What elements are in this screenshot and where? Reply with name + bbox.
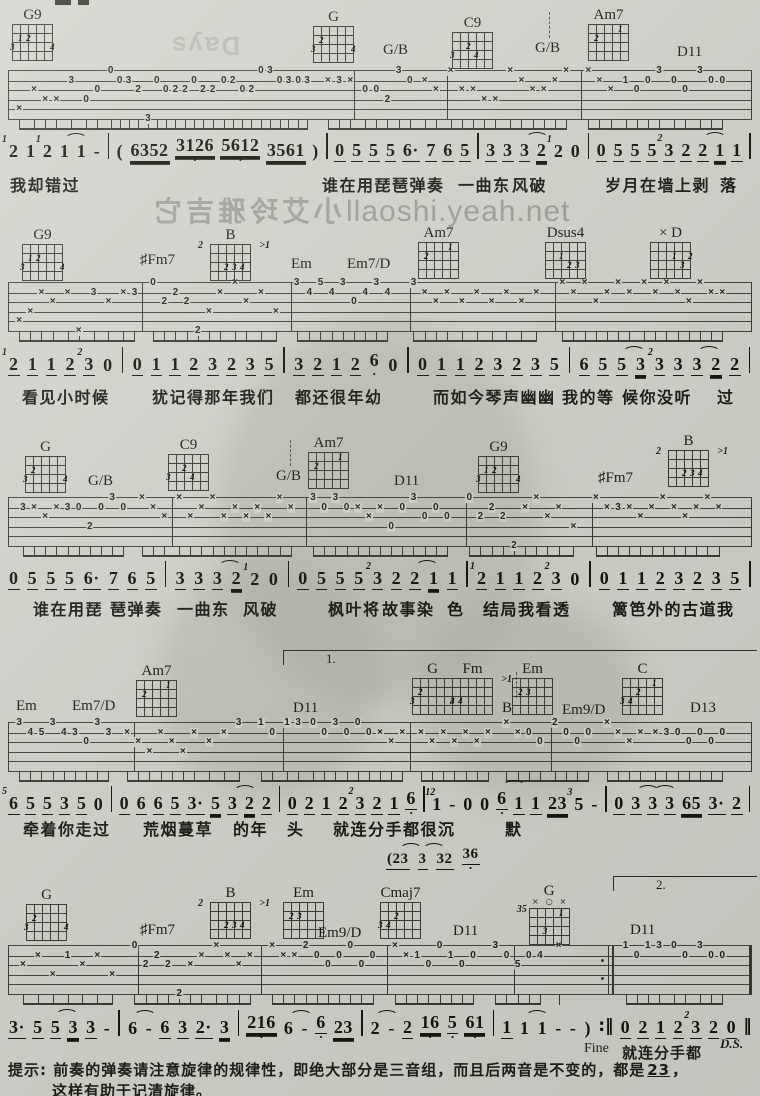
note-number: 2 [312,355,324,376]
chord-top-marks: ×○× [532,898,573,906]
jianpu-note: 2 [304,794,316,815]
jianpu-note: 2 [710,355,722,376]
jianpu-note: 23 [372,569,384,590]
chord-label-G/B: G/B [535,40,560,57]
note-beam [466,780,477,783]
lyric-text: 都还很年幼 [295,384,383,408]
jianpu-note: 3 [177,1018,189,1039]
note-number: 3 [293,355,305,376]
chord-diagram-G9: G91234 [12,8,53,61]
jianpu-note: 7 [108,569,120,590]
tab-note: × [625,503,633,513]
note-beam [257,555,268,558]
volta-bracket: 2. [613,876,757,891]
tab-note: 0 [369,951,377,961]
measure-barline [466,498,467,546]
note-number: 32 [436,852,454,870]
note-beam [655,780,666,783]
note-number: 5 [27,569,39,590]
jianpu-note: 23 [663,141,675,162]
note-beam [19,780,30,783]
finger-number: 2 [518,688,523,697]
note-beam [562,340,573,343]
tab-note: 1 [622,76,630,86]
note-number: 3 [673,355,685,376]
note-beam [235,340,246,343]
tab-note: 0 [82,95,90,105]
note-beam [413,340,424,343]
tip-note-numbers: 23 [645,1061,672,1079]
finger-number: 3 [232,921,237,930]
note-beam [53,340,68,343]
finger-number: 4 [60,263,65,272]
note-number: 0 [569,570,581,590]
note-beam [34,555,45,558]
jianpu-note: 3 [530,355,542,376]
chord-grid: 2342>1 [210,244,251,281]
chord-name: Am7 [136,664,177,678]
note-beam [391,780,402,783]
jianpu-note: 5 [27,569,39,590]
tab-note: 1 [413,951,421,961]
jianpu-note: 3 [647,794,659,815]
fret-label-right: >1 [717,446,728,457]
jianpu-note: 2 [680,141,692,162]
finger-number: 3 [450,697,455,706]
tab-note: 3 [125,76,133,86]
note-stem [250,994,251,1005]
chord-label-G/B: G/B [276,468,301,485]
fret-label-left: 2 [198,240,203,251]
note-beam [190,555,201,558]
note-beam [559,555,574,558]
tab-note: 2 [86,522,94,532]
tab-note: 2 [209,85,217,95]
finger-number: 4 [516,475,521,484]
tab-note: 0 [354,718,362,728]
tab-note: × [718,288,726,298]
tab-note: × [603,718,611,728]
tab-staff: 3×××302030××××××××××××××3030×××003000022… [8,497,752,547]
tab-note: × [220,512,228,522]
note-beam [187,340,198,343]
chord-name: G9 [478,440,519,454]
finger-number: 3 [378,921,383,930]
note-beam [68,555,79,558]
tab-note: 1 [283,718,291,728]
tab-note: × [231,503,239,513]
note-beam [640,555,651,558]
note-beam [53,1003,68,1006]
scan-artifact [55,0,71,5]
note-beam [674,1003,685,1006]
note-number: 3561 [266,141,306,162]
tab-note: × [291,951,299,961]
jianpu-note: 3 [207,355,219,376]
staff-edge [8,498,9,546]
note-stem [722,994,723,1005]
note-number: 2 [391,569,403,590]
note-beam [480,555,491,558]
measure-barline [447,71,448,119]
note-beam [79,340,94,343]
finger-number: 3 [20,263,25,272]
jianpu-note: 1 [169,355,181,376]
lyric-text: 故事染 [382,596,435,620]
measure-bar [279,786,281,812]
tab-staff: ××××××3××302222××××××3454304343×××××××××… [8,282,752,332]
chord-diagram-Am7: Am712 [308,436,349,489]
jianpu-note: 3· [186,794,204,815]
jianpu-note: 2 [312,355,324,376]
jianpu-note: 5 [368,141,380,162]
jianpu-note: 5 [170,794,182,815]
chord-grid: 2342>1 [210,902,251,939]
tab-note: 3 [372,278,380,288]
jianpu-note: 5612· [220,136,260,162]
ds-label: D.S. [720,1036,743,1052]
finger-number: 1 [672,252,677,261]
chord-label-D11: D11 [630,922,655,939]
chord-name: Am7 [308,436,349,450]
jianpu-note: 5 [630,141,642,162]
jianpu-note: 2 [409,569,421,590]
chord-diagram-G9: G91234 [22,228,63,281]
tab-note: × [186,960,194,970]
measure-bar [118,1010,120,1036]
chord-grid: 1335 [529,908,570,945]
jianpu-note: 1 [455,355,467,376]
jianpu-note: 0 [479,795,491,815]
tab-note: 0 [696,728,704,738]
lyric-text: 结局我看透 [483,596,571,620]
measure-barline [142,283,143,331]
tab-note: 2 [510,541,518,551]
tab-note: 3 [15,718,23,728]
finger-number: 3 [24,923,29,932]
note-beam [142,555,153,558]
jianpu-note: 5 [729,569,741,590]
measure-bar [477,133,479,159]
note-number: 0 [387,356,399,376]
note-beam [68,1003,83,1006]
note-number: 3 [355,794,367,815]
note-number: 3 [83,355,95,376]
jianpu-note: 0 [287,794,299,815]
note-beam [216,1003,227,1006]
finger-number: 1 [448,243,453,252]
finger-number: 1 [652,679,657,688]
jianpu-note: 1 [331,355,343,376]
note-number: 0 [102,356,114,376]
note-stem [402,771,403,782]
note-number: ( [116,142,125,162]
note-beam [607,780,618,783]
tab-note: × [473,737,481,747]
note-number: - [103,1019,112,1039]
jianpu-note: 3· [8,1018,26,1039]
tab-note: 2 [134,85,142,95]
tab-note: × [670,503,678,513]
jianpu-note: 1 [447,569,459,590]
jianpu-note: 5 [616,355,628,376]
note-beam [417,1003,428,1006]
jianpu-note: 3 [245,355,257,376]
tab-note: 0 [443,512,451,522]
note-number: 6352 [130,141,170,162]
tab-note: 2 [248,85,256,95]
note-number: 3 [219,1018,231,1039]
lyric-text: 的年 [233,816,268,840]
tab-note: × [30,85,38,95]
note-beam [629,780,640,783]
tab-note: × [562,66,570,76]
tab-note: 2 [153,951,161,961]
note-beam [175,340,186,343]
note-beam [689,780,700,783]
note-beam [700,1003,711,1006]
note-number: ) [584,1019,593,1039]
tab-note: × [514,728,522,738]
note-number: 1 [513,569,525,590]
lyric-text: 我却错过 [10,172,80,196]
note-number: 6 [127,1019,139,1039]
jianpu-note: 36· [462,847,480,870]
jianpu-note: 1 [27,355,39,376]
note-beam [700,780,711,783]
jianpu-note: 2 [261,794,273,815]
note-number: 3 [485,141,497,162]
finger-number: 2 [224,921,229,930]
jianpu-note: 3 [519,141,531,162]
note-beam [261,340,276,343]
chord-grid: 123 [650,242,691,279]
note-number: 7 [108,569,120,590]
tab-note: × [458,85,466,95]
jianpu-note: - [554,1019,563,1039]
grace-note: 5 [2,786,7,797]
chord-label-Em: Em [291,256,312,273]
measure-bar [605,786,607,812]
note-number: 1 [169,355,181,376]
tab-staff: 345343033×××××××××31013003000×××××××××××… [8,722,752,772]
chord-diagram-B: B2342>1 [210,228,251,281]
lyric-text: 牵着你走过 [23,816,111,840]
jianpu-line: 565535006653·5322021223216·121-006·11233… [8,783,752,815]
tab-note: 0 [320,503,328,513]
note-beam [536,555,547,558]
note-beam [332,340,343,343]
tab-note: × [376,728,384,738]
tab-note: 3 [696,941,704,951]
tab-note: × [592,297,600,307]
note-beam [365,340,376,343]
note-beam [696,555,707,558]
tab-note: × [584,66,592,76]
tab-note: × [625,737,633,747]
note-beam [477,780,488,783]
finger-number: 4 [351,45,356,54]
note-number: 2 [692,569,704,590]
jianpu-note: 5 [335,569,347,590]
note-number: 5 [32,1018,44,1039]
tab-note: 2 [384,95,392,105]
note-number: 5 [170,794,182,815]
note-beam [297,340,310,343]
note-beam [655,340,666,343]
grace-note: 1 [36,134,41,145]
note-beam [644,340,655,343]
note-number: 1 [436,355,448,376]
finger-number: 2 [466,42,471,51]
jianpu-note: 6 [159,1018,171,1039]
note-beam [23,555,34,558]
measure-barline [283,723,284,771]
note-number: 5 [264,355,276,376]
jianpu-note: 7 [425,141,437,162]
note-beam [637,1003,648,1006]
measure-bar [326,133,328,159]
tab-note: 0 [361,85,369,95]
jianpu-note: 3 [418,852,428,870]
note-number: 0 [334,141,346,162]
finger-number: 3 [166,473,171,482]
tab-note: 0 [633,951,641,961]
jianpu-note: 2 [231,569,243,590]
octave-dot: · [428,1034,432,1039]
note-beam [648,1003,659,1006]
note-beam [97,780,108,783]
tab-note: 1 [64,951,72,961]
note-number: 5 [50,1018,62,1039]
staff-line [8,761,752,762]
note-number: 5 [459,141,471,162]
note-number: 6 [153,794,165,815]
tab-note: 0 [320,728,328,738]
jianpu-note: 5 [353,569,365,590]
note-beam [529,1003,540,1006]
tab-note: × [532,288,540,298]
note-number: 5 [145,569,157,590]
tab-note: 0 [421,512,429,522]
tab-note: 3 [395,66,403,76]
note-number: 6· [83,569,101,590]
chord-label-♯Fm7: ♯Fm7 [598,470,633,487]
note-beam [183,780,194,783]
note-beam [492,555,503,558]
note-number: 0 [132,355,144,376]
finger-number: 3 [690,469,695,478]
note-beam [335,780,346,783]
note-number: 3 [711,569,723,590]
tab-note: × [49,297,57,307]
chord-diagram-C9: C9234 [452,16,493,69]
note-stem [123,546,124,557]
chord-name: G [26,888,67,902]
tab-note: × [421,288,429,298]
finger-number: 3 [10,43,15,52]
tab-note: 0 [718,728,726,738]
jianpu-note: 12 [8,142,20,162]
measure-barline [306,498,307,546]
jianpu-note: 12 [42,142,54,162]
tab-note: × [681,512,689,522]
chord-grid: 12 [308,452,349,489]
jianpu-note: 2 [697,141,709,162]
jianpu-note: (23 [386,852,410,870]
finger-number: 3 [23,475,28,484]
note-number: 3· [186,794,204,815]
lyric-text: 候你没听 [622,384,692,408]
note-beam [462,340,477,343]
note-number: 2 [511,355,523,376]
note-beam [38,1003,53,1006]
tab-note: 0 [681,85,689,95]
fret-label-left: 2 [656,446,661,457]
note-number: 6 [8,794,20,815]
repeat-bar [612,946,614,994]
note-number: 1 [46,355,58,376]
chord-label-♯Fm7: ♯Fm7 [140,252,175,269]
jianpu-note: 0 [613,794,625,815]
note-number: 2· [195,1018,213,1039]
tab-note: × [503,288,511,298]
jianpu-note: 1 [388,794,400,815]
note-number: 5 [597,355,609,376]
note-number: 1 [714,141,726,162]
jianpu-note: 2 [708,1018,720,1039]
staff-line [8,984,752,985]
note-number: 6 [283,1019,295,1039]
tab-note: 0 [525,728,533,738]
note-beam [391,555,402,558]
tab-note: × [480,95,488,105]
jianpu-note: 3 [67,1018,79,1039]
chord-diagram-G: G234 [25,440,66,493]
jianpu-note: 2 [532,569,544,590]
finger-number: 2 [314,462,319,471]
note-number: (23 [386,852,410,870]
chord-grid: 234 [168,454,209,491]
chord-name: B [210,886,251,900]
jianpu-note: 6 [442,141,454,162]
tab-note: 0 [365,728,373,738]
note-number: 6· [402,141,420,162]
jianpu-note: - [145,1019,154,1039]
tab-note: × [603,503,611,513]
note-stem [588,771,589,782]
jianpu-note: 3 [502,141,514,162]
tab-note: 0 [536,737,544,747]
note-beam [428,1003,439,1006]
tab-note: 0 [707,951,715,961]
note-beam [343,340,354,343]
note-beam [421,780,432,783]
finger-number: 2 [31,466,36,475]
tab-note: 0 [343,503,351,513]
note-beam [361,1003,372,1006]
measure-barline [387,946,388,994]
watermark-cn-text: 小艾玲雅吉它 [150,190,342,230]
note-stem [722,771,723,782]
note-number: 2 [371,794,383,815]
finger-number: 4 [698,469,703,478]
note-beam [380,555,391,558]
note-beam [157,1003,168,1006]
chord-grid: 234 [313,26,354,63]
lyric-text: 风破 [512,172,547,196]
tab-note: × [179,747,187,757]
